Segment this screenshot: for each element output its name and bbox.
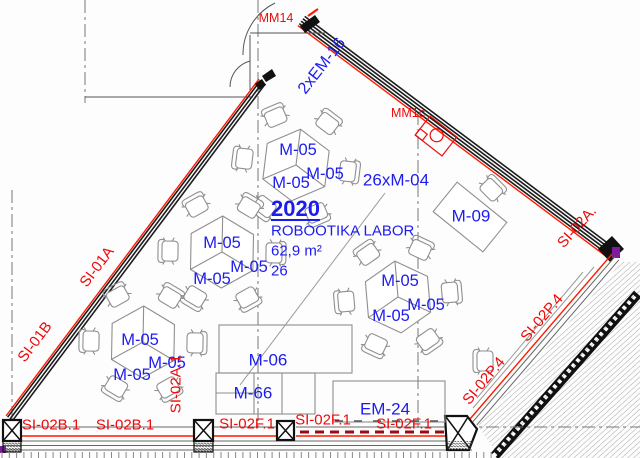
label-door-mm14: MM14	[259, 12, 294, 25]
label-wall-si02f1: SI-02F.1	[219, 417, 275, 432]
label-wall-si02f1: SI-02F.1	[295, 413, 351, 428]
label-table-m05: M-05	[193, 271, 231, 288]
label-chairs-note: 26xM-04	[363, 172, 429, 189]
column	[194, 420, 213, 452]
column	[277, 421, 294, 440]
label-room-number: 2020	[271, 198, 320, 220]
label-cabinet-m66: M-66	[234, 385, 273, 402]
label-table-m05: M-05	[407, 297, 445, 314]
corner-marker	[612, 247, 620, 258]
label-table-m05: M-05	[121, 332, 159, 349]
label-desk-m09: M-09	[452, 208, 491, 225]
door-jamb	[255, 79, 266, 90]
label-table-m05: M-05	[230, 259, 268, 276]
label-table-m05: M-05	[306, 166, 344, 183]
floor-plan: MM14 2xEM-16 MM1c 26xM-04 2020 ROBOOTIKA…	[0, 0, 640, 458]
label-table-m05: M-05	[372, 308, 410, 325]
label-table-m05: M-05	[203, 235, 241, 252]
column-corner	[445, 416, 477, 450]
label-wall-si02f1: SI-02F.1	[376, 417, 432, 432]
door-jamb	[262, 69, 276, 82]
label-table-m05: M-05	[381, 273, 419, 290]
label-wall-si02b1: SI-02B.1	[22, 418, 80, 433]
label-room-capacity: 26	[271, 264, 288, 279]
label-table-m05: M-05	[272, 175, 310, 192]
label-table-m05: M-05	[279, 142, 317, 159]
label-room-name: ROBOOTIKA LABOR	[271, 224, 414, 239]
facade-tick-row	[2, 452, 491, 458]
column	[3, 420, 21, 452]
wall-corner-cap	[598, 236, 624, 262]
label-equipment-mm1c: MM1c	[391, 107, 425, 120]
label-table-m05: M-05	[113, 367, 151, 384]
label-room-area: 62,9 m²	[271, 244, 322, 259]
door-swing-arc	[230, 61, 250, 87]
label-wall-si02a1: SI-02A.1	[169, 355, 184, 413]
label-cabinet-m06: M-06	[249, 352, 288, 369]
label-wall-si02b1: SI-02B.1	[96, 418, 154, 433]
